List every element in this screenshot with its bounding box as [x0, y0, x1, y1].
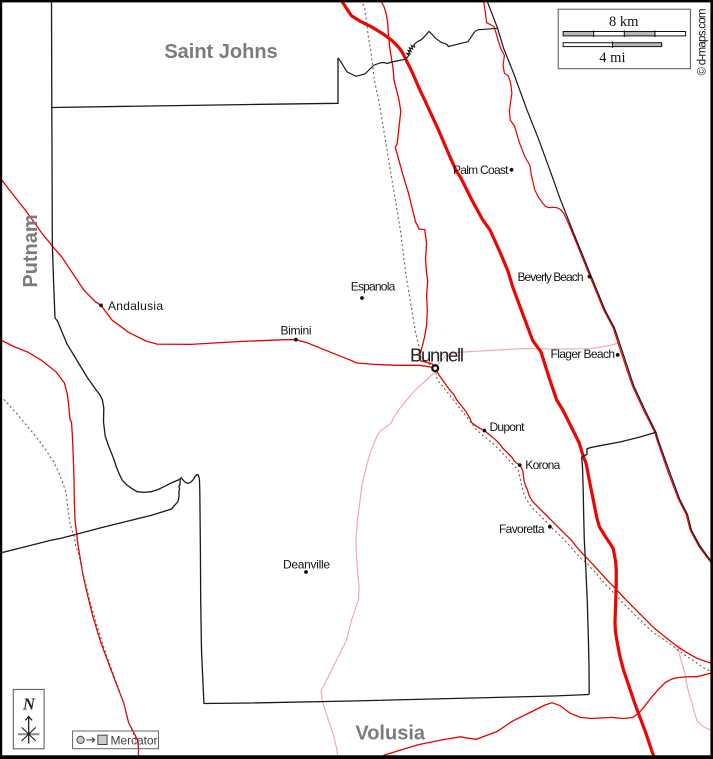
svg-text:Flager Beach: Flager Beach	[551, 347, 616, 361]
svg-text:Espanola: Espanola	[351, 280, 396, 294]
svg-text:Dupont: Dupont	[490, 420, 526, 434]
svg-text:8 km: 8 km	[609, 14, 639, 30]
svg-text:Palm Coast: Palm Coast	[453, 163, 509, 177]
svg-text:Andalusia: Andalusia	[108, 299, 163, 313]
svg-text:© d-maps.com: © d-maps.com	[697, 9, 709, 76]
svg-text:Putnam: Putnam	[20, 214, 42, 287]
svg-text:Volusia: Volusia	[355, 723, 426, 745]
svg-text:Mercator: Mercator	[111, 734, 158, 748]
svg-text:Favoretta: Favoretta	[499, 522, 545, 536]
svg-text:Beverly Beach: Beverly Beach	[518, 270, 584, 284]
svg-text:N: N	[22, 695, 36, 714]
svg-text:Bunnell: Bunnell	[410, 345, 464, 366]
svg-text:Saint Johns: Saint Johns	[164, 41, 277, 63]
svg-text:Korona: Korona	[525, 458, 560, 472]
svg-text:4 mi: 4 mi	[599, 50, 625, 66]
svg-text:Bimini: Bimini	[281, 324, 312, 338]
svg-text:Deanville: Deanville	[283, 557, 330, 571]
